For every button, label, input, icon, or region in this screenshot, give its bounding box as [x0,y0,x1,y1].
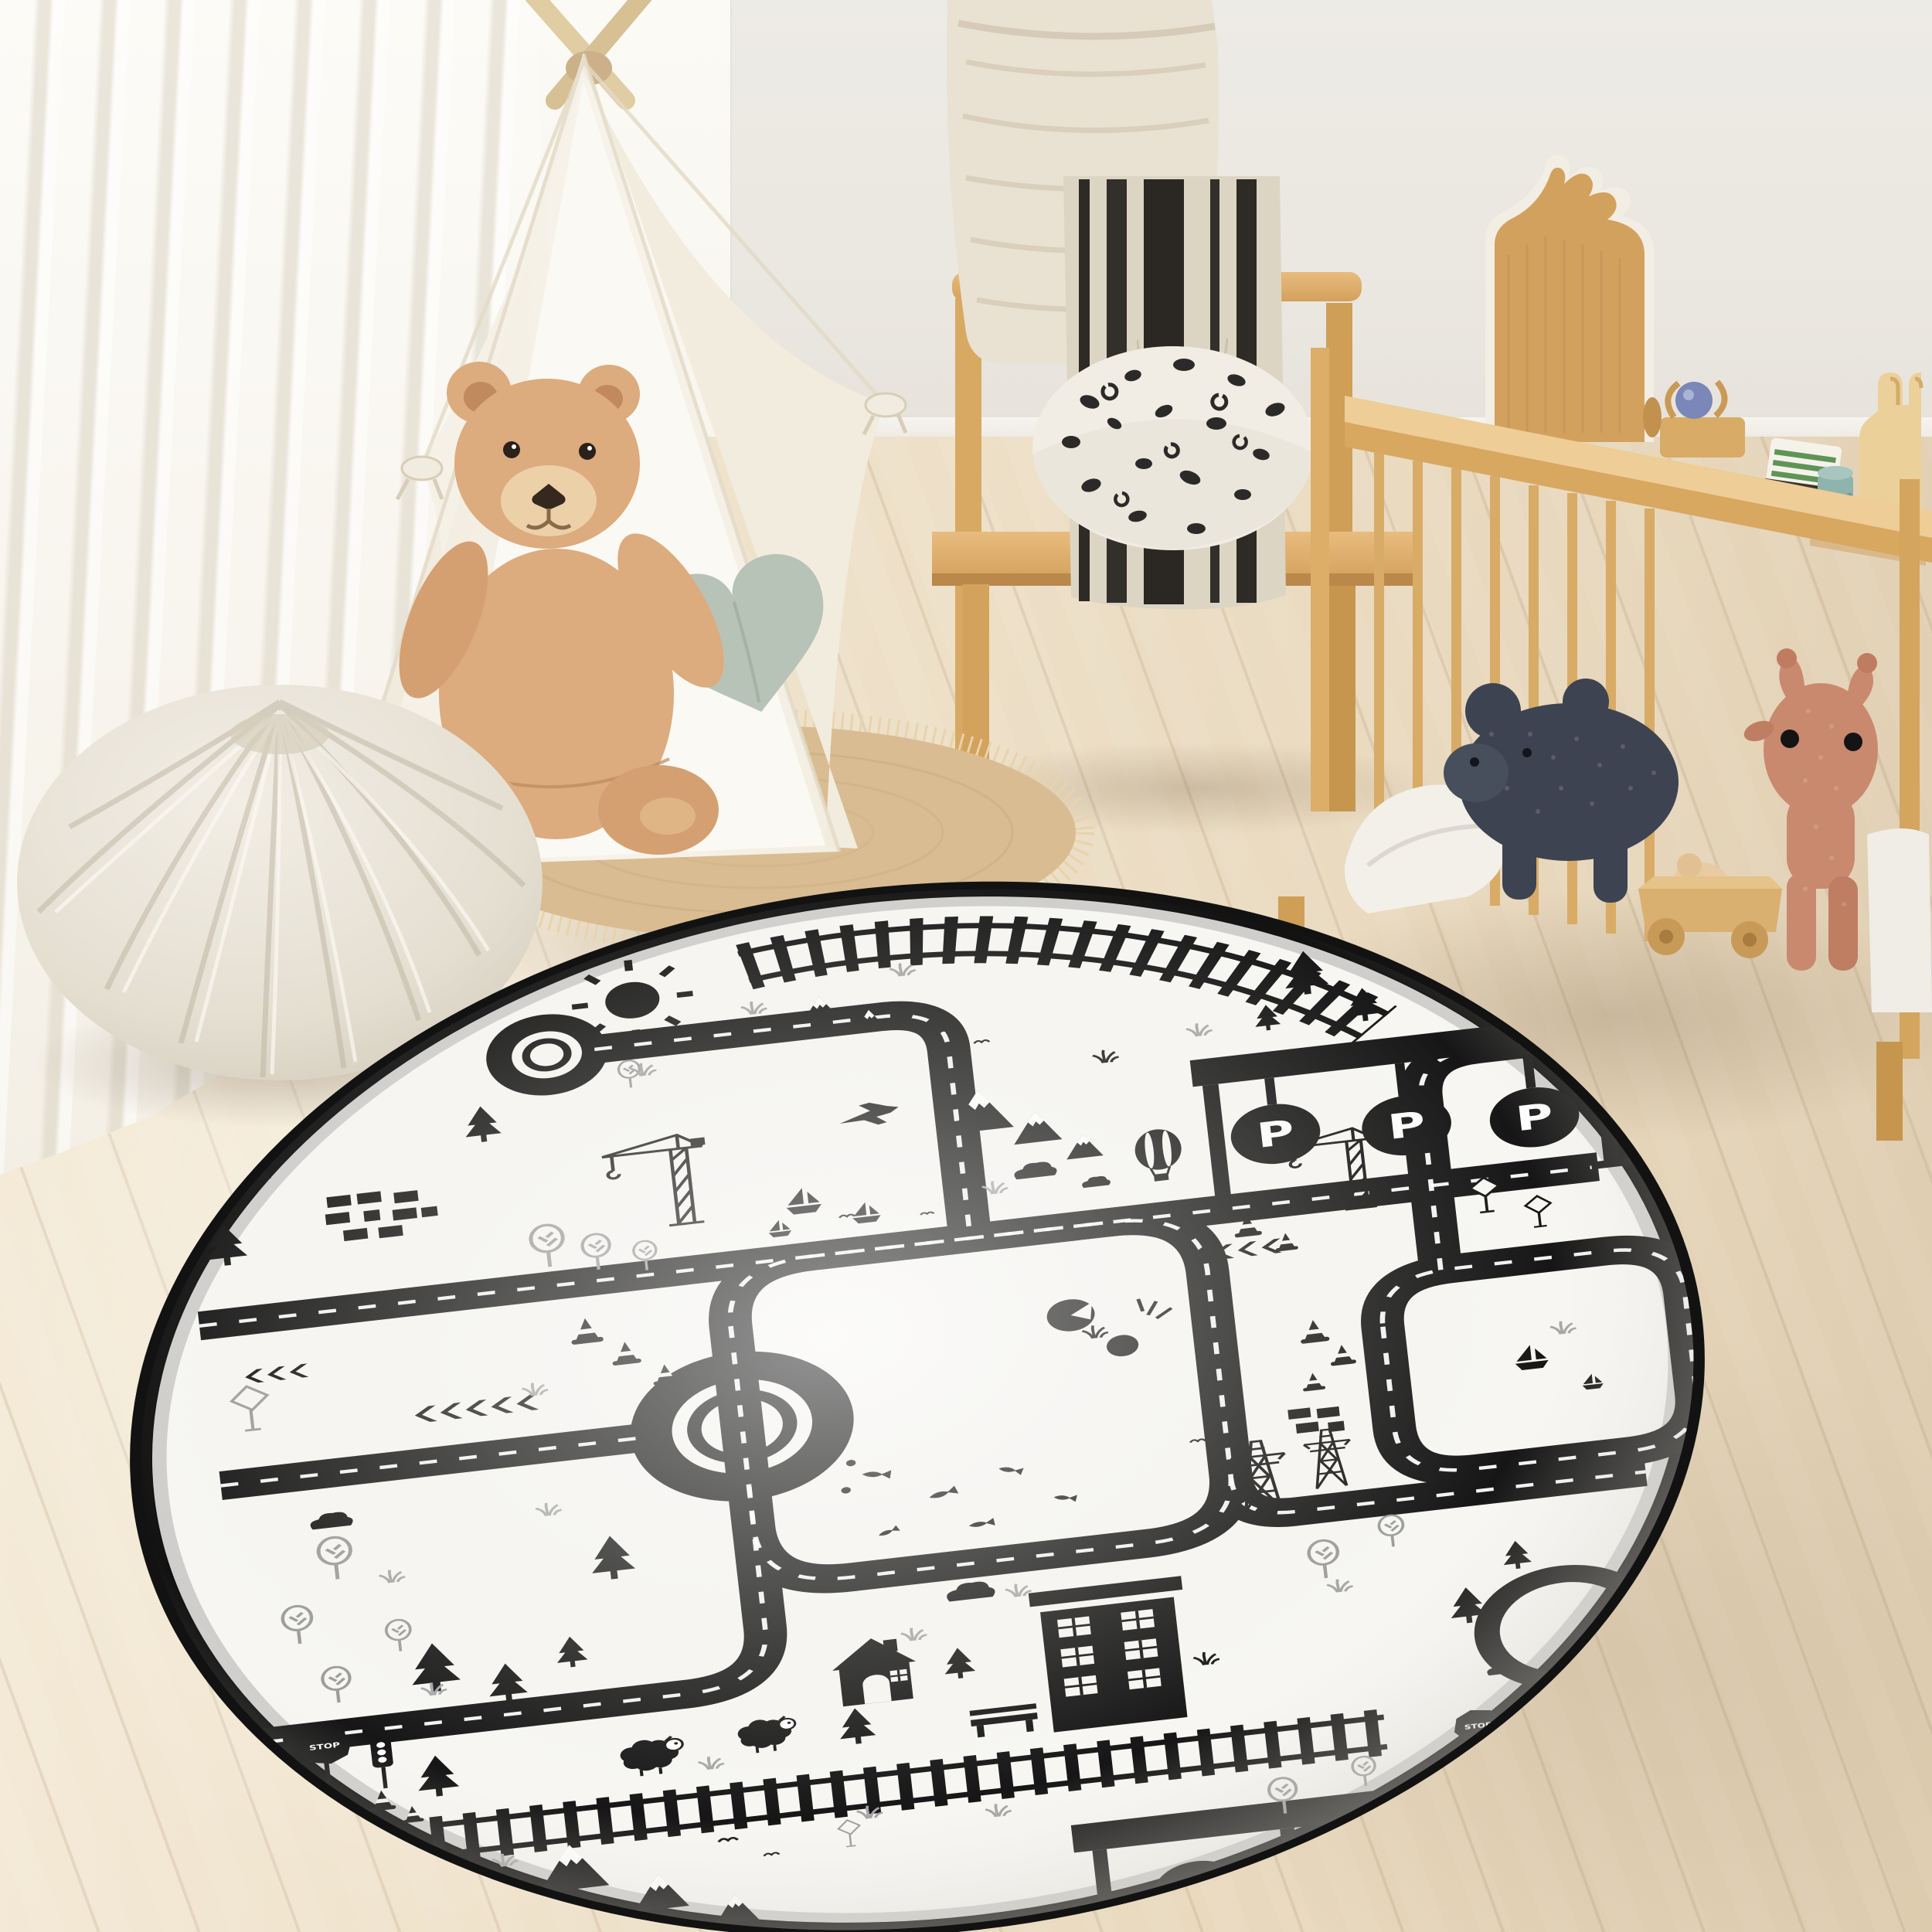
white-bin [1867,828,1932,1012]
road-play-rug: P P P P P P [63,792,1772,1932]
wooden-animal-board-toy [1485,155,1654,443]
playroom-scene: P P P P P P [0,0,1932,1932]
wooden-gadget-toy [1643,382,1745,457]
